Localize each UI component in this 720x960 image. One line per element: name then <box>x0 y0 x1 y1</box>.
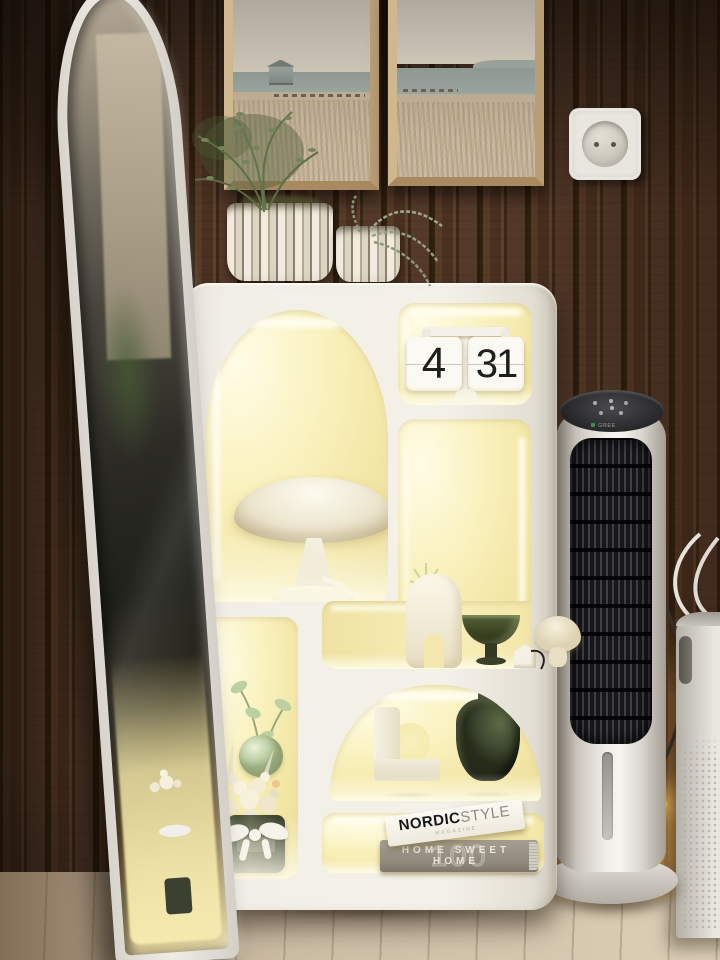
painting-sky <box>397 0 535 64</box>
mirror-reflection-shelf-glow <box>111 653 222 946</box>
seascape-left <box>233 0 370 181</box>
pedestal-bowl-foot <box>476 657 506 665</box>
planter-small <box>336 226 400 282</box>
curved-vase-base <box>374 759 440 781</box>
vase-arch-cutout <box>424 634 444 668</box>
organic-vase <box>406 574 462 668</box>
beach-hut <box>269 65 293 83</box>
socket-hole-right <box>611 142 616 147</box>
mushroom-lamp-stem <box>293 538 335 594</box>
pier <box>274 94 364 97</box>
socket-hole-left <box>594 142 599 147</box>
vase-shadow <box>370 791 450 799</box>
fan-grille <box>570 438 652 744</box>
lamp-cord <box>205 310 388 602</box>
ribbon-tail <box>261 838 272 859</box>
pier <box>403 89 458 92</box>
pot-label <box>237 837 274 852</box>
painting-grass <box>397 102 535 177</box>
clock-stand-bar <box>424 327 508 336</box>
niche-arch-lamp <box>205 310 388 602</box>
wall-outlet <box>569 108 641 180</box>
clock-minute-digits: 31 <box>476 342 517 387</box>
ribbon-knot <box>249 829 261 841</box>
mirror-reflection-plant <box>85 252 180 496</box>
flower-pot <box>227 815 285 873</box>
painting-grass <box>233 100 370 181</box>
flower-arrangement <box>239 789 259 809</box>
clock-hour-card: 4 <box>406 337 462 391</box>
vase-shadow <box>452 790 524 799</box>
wall-art-right <box>388 0 544 186</box>
mirror-reflection-flowers <box>159 775 174 790</box>
ribbon-loop-right <box>258 820 291 843</box>
clock-pedestal-base <box>434 398 498 405</box>
air-purifier <box>676 612 720 938</box>
niche-half-arch <box>330 685 541 801</box>
photo-room-corner: GREE <box>0 0 720 960</box>
clock-pedestal <box>455 389 477 405</box>
planter-large <box>227 203 333 281</box>
fan-brand-logo: GREE <box>578 420 644 430</box>
wall-art-left <box>224 0 379 190</box>
ribbon-tail <box>238 838 250 861</box>
clock-hour-digit: 4 <box>422 339 446 389</box>
fan-buttons <box>610 406 614 410</box>
mirror-reflection-ribbon <box>158 824 191 838</box>
green-vase-mouth <box>480 689 502 696</box>
gree-logo-dot <box>591 423 595 427</box>
mushroom-lamp-base <box>273 586 355 602</box>
niche-clock: 4 31 <box>398 303 532 405</box>
mirror-reflection-art <box>96 33 172 361</box>
fan-brand-text: GREE <box>598 422 616 428</box>
led-bar <box>408 308 522 316</box>
socket-recess <box>582 121 628 167</box>
mirror-reflection-pot <box>164 877 192 915</box>
book-title-light: STYLE <box>459 802 511 825</box>
fan-water-level-window <box>602 752 613 840</box>
painting-sky <box>233 0 370 76</box>
purifier-handle-notch <box>679 636 692 684</box>
clock-minute-card: 31 <box>468 337 524 391</box>
seascape-right <box>397 0 535 177</box>
purifier-perforations <box>682 732 720 930</box>
display-shelf: 4 31 <box>183 283 557 910</box>
house-cord <box>523 643 553 671</box>
book-spine-text: HOME SWEET HOME <box>380 845 532 867</box>
apple-vase <box>239 735 283 777</box>
green-round-vase <box>456 699 520 781</box>
